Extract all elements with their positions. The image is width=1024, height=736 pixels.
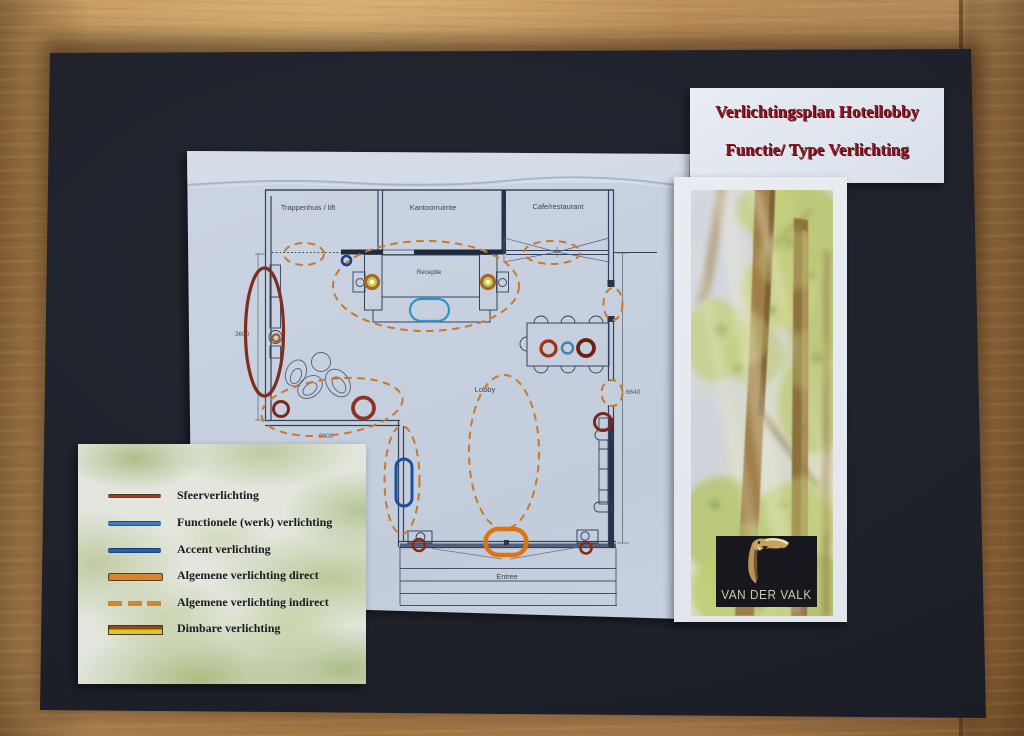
svg-text:3600: 3600 <box>235 331 250 338</box>
svg-text:Cafe/restaurant: Cafe/restaurant <box>533 202 584 211</box>
svg-text:Trappenhuis / lift: Trappenhuis / lift <box>281 203 335 212</box>
svg-text:Kantoorruimte: Kantoorruimte <box>410 203 456 212</box>
svg-text:Receptie: Receptie <box>417 269 442 276</box>
svg-text:6640: 6640 <box>626 389 641 396</box>
svg-text:Entree: Entree <box>496 572 517 581</box>
